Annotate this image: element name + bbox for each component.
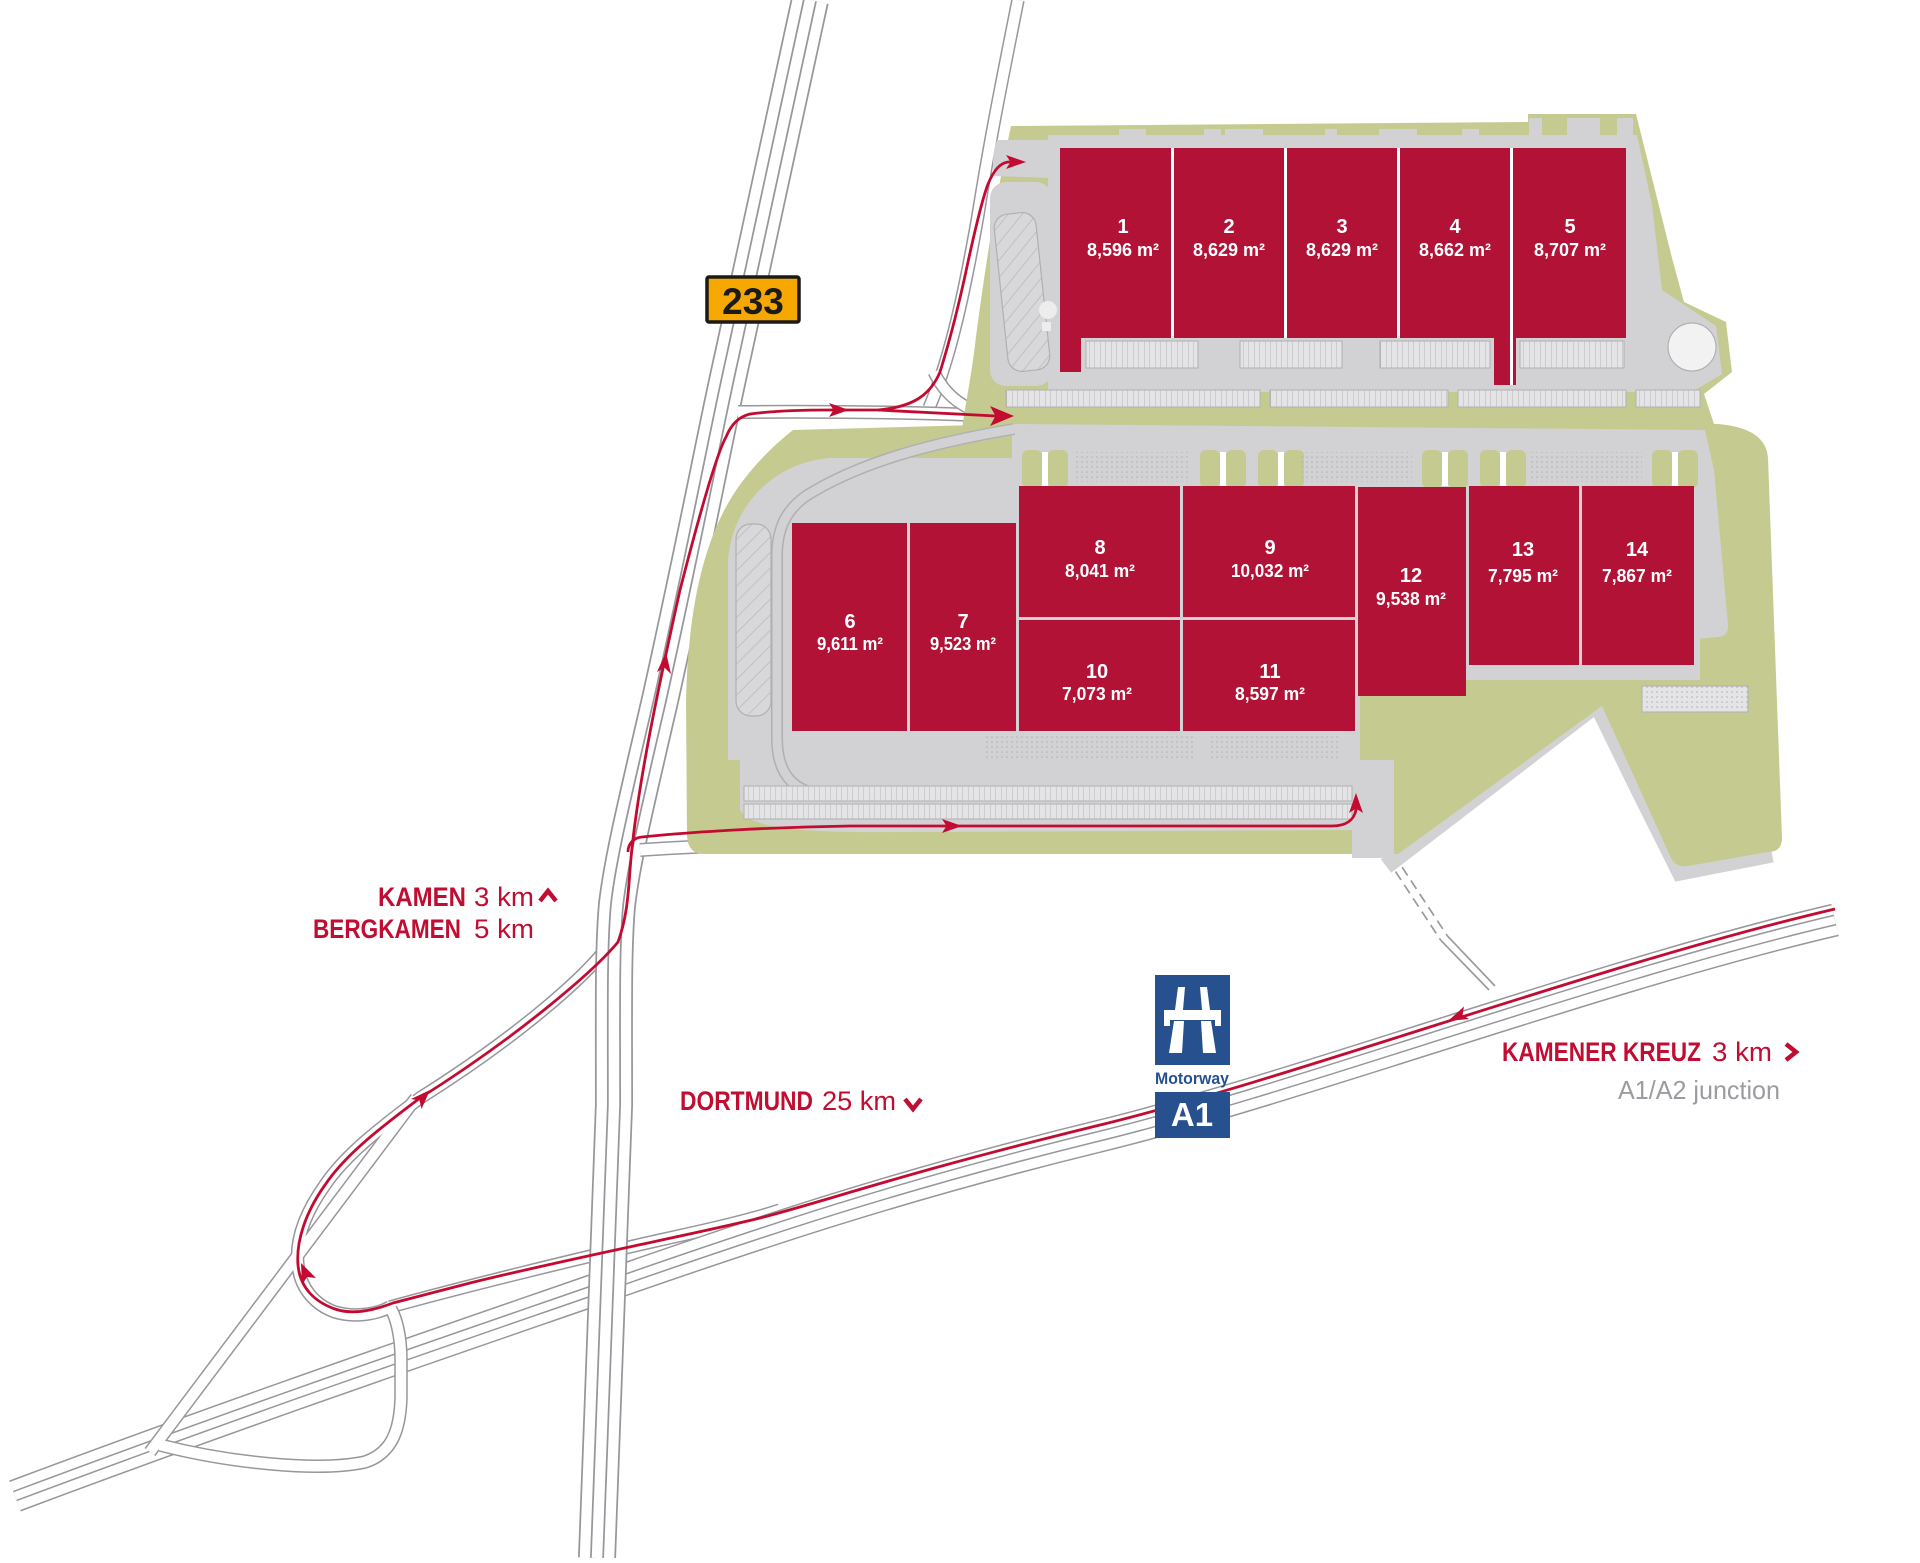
- svg-text:9,611 m²: 9,611 m²: [817, 634, 883, 654]
- svg-text:2: 2: [1223, 216, 1234, 238]
- svg-text:3 km: 3 km: [474, 882, 534, 912]
- svg-text:8,597 m²: 8,597 m²: [1235, 684, 1305, 704]
- svg-text:8,707 m²: 8,707 m²: [1534, 240, 1606, 260]
- svg-text:8,629 m²: 8,629 m²: [1306, 240, 1378, 260]
- svg-text:5 km: 5 km: [474, 914, 534, 944]
- svg-text:9,538 m²: 9,538 m²: [1376, 589, 1446, 609]
- svg-text:3 km: 3 km: [1712, 1037, 1772, 1067]
- svg-text:7,073 m²: 7,073 m²: [1062, 684, 1132, 704]
- svg-text:9,523 m²: 9,523 m²: [930, 634, 996, 654]
- svg-text:3: 3: [1336, 216, 1347, 238]
- svg-text:7,867 m²: 7,867 m²: [1602, 566, 1672, 586]
- svg-text:6: 6: [844, 611, 855, 633]
- svg-text:1: 1: [1117, 216, 1128, 238]
- svg-text:10,032 m²: 10,032 m²: [1231, 561, 1309, 581]
- svg-text:7: 7: [957, 611, 968, 633]
- svg-text:8,596 m²: 8,596 m²: [1087, 240, 1159, 260]
- svg-text:8: 8: [1094, 537, 1105, 559]
- svg-text:25 km: 25 km: [822, 1086, 896, 1116]
- svg-text:8,041 m²: 8,041 m²: [1065, 561, 1135, 581]
- svg-text:8,629 m²: 8,629 m²: [1193, 240, 1265, 260]
- svg-text:DORTMUND: DORTMUND: [680, 1086, 813, 1116]
- svg-text:KAMEN: KAMEN: [378, 882, 466, 912]
- svg-text:9: 9: [1264, 537, 1275, 559]
- svg-text:10: 10: [1086, 661, 1108, 683]
- svg-text:Motorway: Motorway: [1155, 1069, 1230, 1088]
- svg-text:5: 5: [1564, 216, 1575, 238]
- svg-text:13: 13: [1512, 539, 1534, 561]
- svg-text:12: 12: [1400, 565, 1422, 587]
- svg-text:14: 14: [1626, 539, 1649, 561]
- svg-text:233: 233: [722, 281, 784, 322]
- svg-text:BERGKAMEN: BERGKAMEN: [313, 914, 461, 944]
- svg-text:7,795 m²: 7,795 m²: [1488, 566, 1558, 586]
- svg-text:A1: A1: [1171, 1096, 1213, 1133]
- svg-text:11: 11: [1259, 661, 1280, 683]
- svg-text:A1/A2 junction: A1/A2 junction: [1618, 1075, 1780, 1105]
- svg-text:8,662 m²: 8,662 m²: [1419, 240, 1491, 260]
- svg-text:4: 4: [1449, 216, 1461, 238]
- svg-text:KAMENER KREUZ: KAMENER KREUZ: [1502, 1037, 1701, 1067]
